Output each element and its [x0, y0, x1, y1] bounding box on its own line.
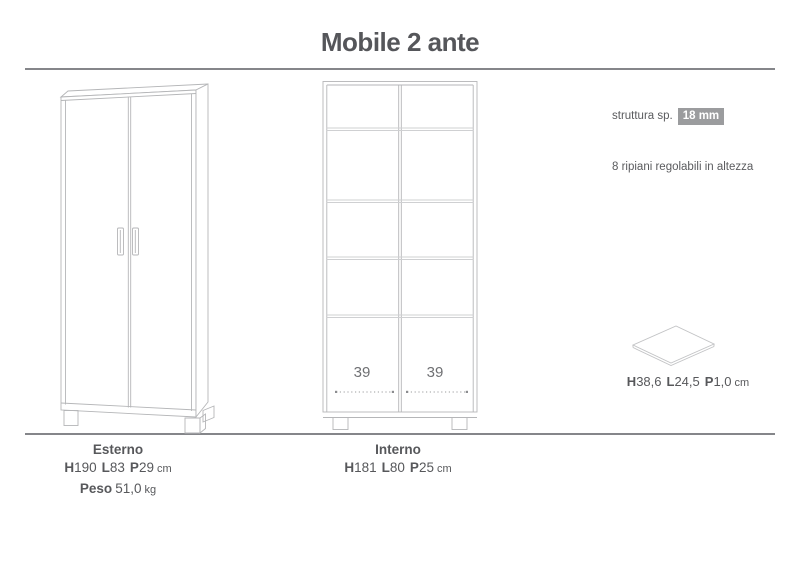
structure-thickness-value-badge: 18 mm: [678, 108, 724, 125]
internal-dimensions-title: Interno: [308, 442, 488, 457]
int-height-value: 181: [354, 460, 377, 475]
shelf-panel-drawing: [633, 326, 714, 366]
ext-width-label: L: [102, 460, 110, 475]
shelf-panel-dimensions: H38,6L24,5P1,0cm: [608, 374, 768, 389]
shelves-note: 8 ripiani regolabili in altezza: [612, 161, 753, 173]
external-dimensions-block: Esterno H190L83P29cm Peso51,0kg: [28, 442, 208, 496]
weight-row: Peso51,0kg: [28, 481, 208, 496]
internal-dimensions-block: Interno H181L80P25cm: [308, 442, 488, 475]
structure-thickness-row: struttura sp.18 mm: [612, 108, 724, 125]
panel-height-value: 38,6: [636, 374, 661, 389]
int-depth-value: 25: [419, 460, 434, 475]
ext-depth-value: 29: [139, 460, 154, 475]
external-dimensions-title: Esterno: [28, 442, 208, 457]
compartment-width-label-right: 39: [405, 364, 465, 381]
cabinet-front-drawing: [61, 84, 214, 433]
external-dimensions-values: H190L83P29cm: [28, 460, 208, 475]
weight-unit: kg: [144, 484, 156, 496]
ext-height-value: 190: [74, 460, 97, 475]
compartment-width-label-left: 39: [332, 364, 392, 381]
ext-dims-unit: cm: [157, 463, 172, 475]
panel-width-value: 24,5: [674, 374, 699, 389]
int-height-label: H: [344, 460, 354, 475]
ext-depth-label: P: [130, 460, 139, 475]
int-width-value: 80: [390, 460, 405, 475]
panel-dims-unit: cm: [735, 377, 750, 389]
int-depth-label: P: [410, 460, 419, 475]
structure-thickness-label: struttura sp.: [612, 110, 673, 122]
weight-label: Peso: [80, 481, 112, 496]
ext-width-value: 83: [110, 460, 125, 475]
int-dims-unit: cm: [437, 463, 452, 475]
internal-dimensions-values: H181L80P25cm: [308, 460, 488, 475]
weight-value: 51,0: [115, 481, 141, 496]
int-width-label: L: [382, 460, 390, 475]
panel-depth-value: 1,0: [713, 374, 731, 389]
panel-height-label: H: [627, 374, 636, 389]
ext-height-label: H: [64, 460, 74, 475]
